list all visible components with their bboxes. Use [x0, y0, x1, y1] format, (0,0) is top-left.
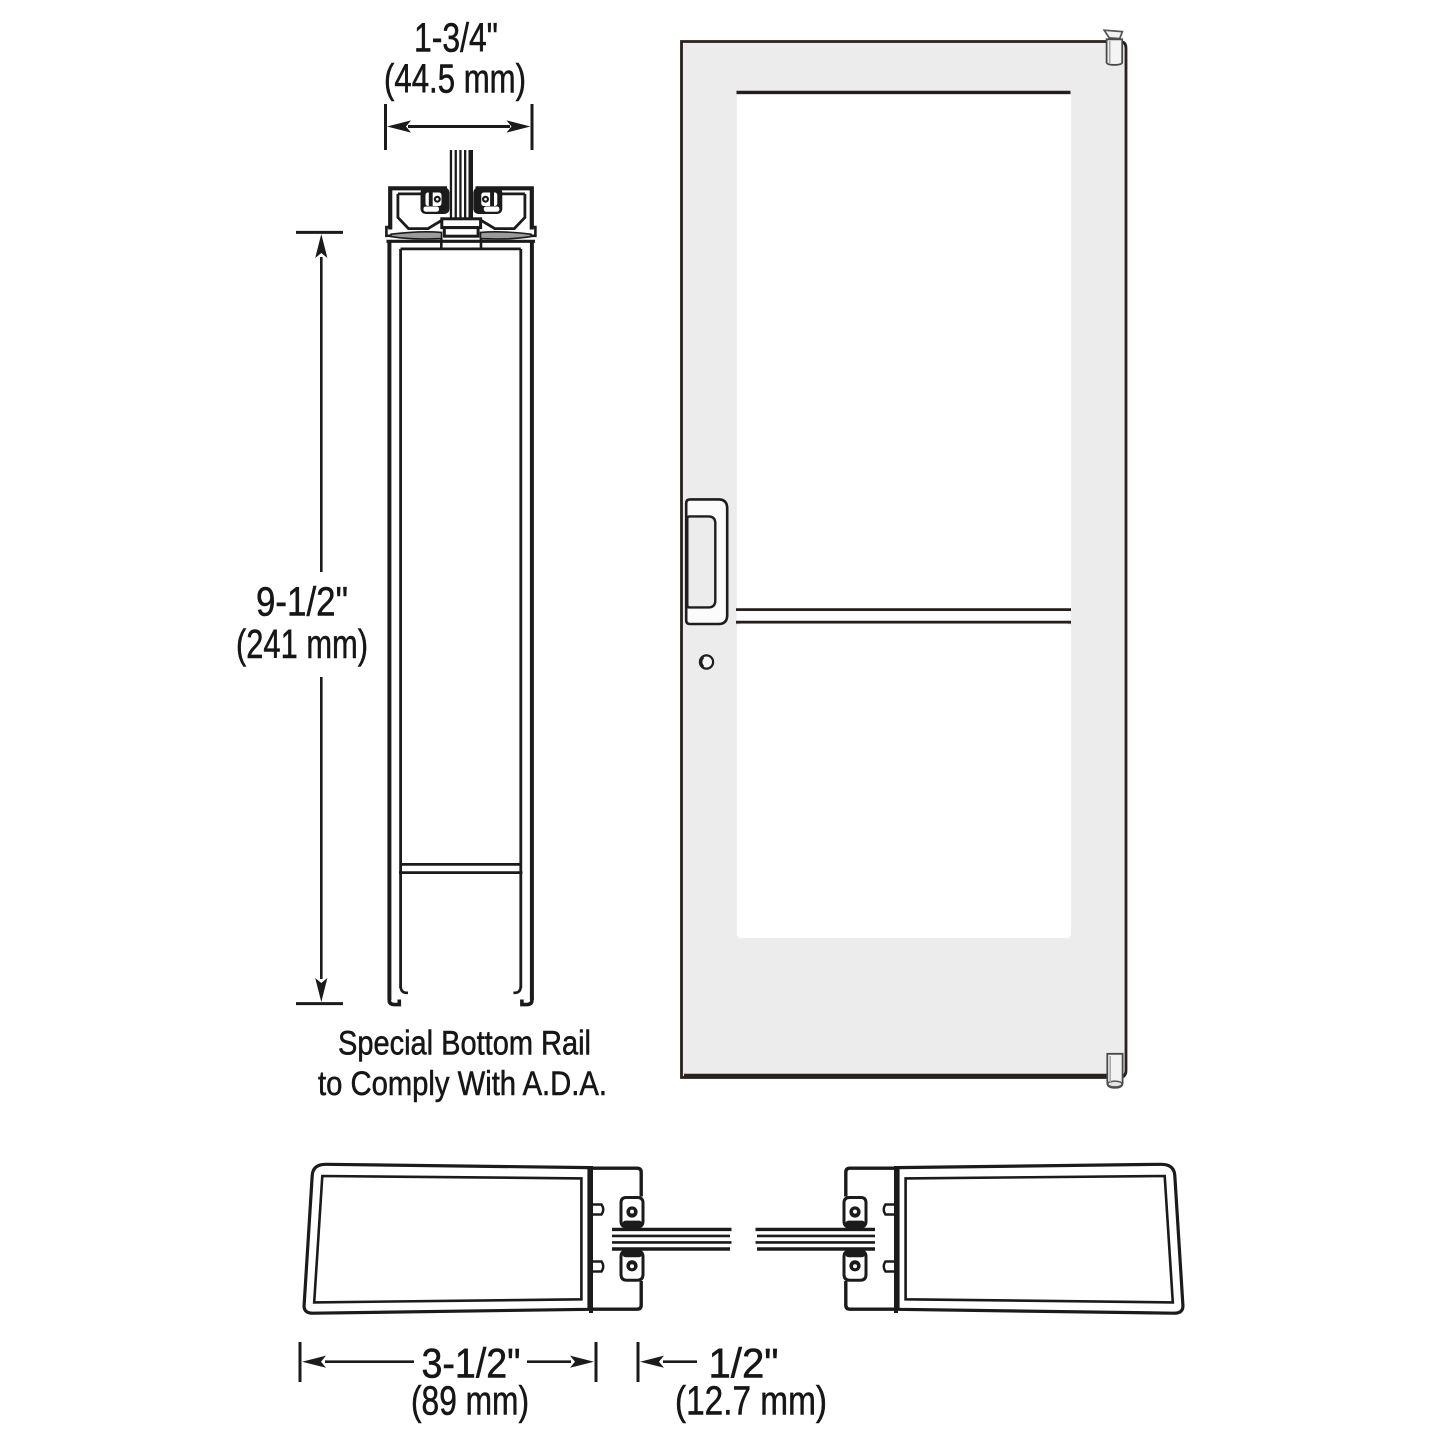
svg-text:Special Bottom Rail: Special Bottom Rail — [338, 1025, 591, 1063]
svg-text:(89 mm): (89 mm) — [411, 1378, 529, 1424]
svg-text:(241 mm): (241 mm) — [236, 621, 368, 667]
svg-text:9-1/2": 9-1/2" — [256, 579, 348, 625]
svg-text:(12.7 mm): (12.7 mm) — [675, 1378, 827, 1424]
svg-text:(44.5 mm): (44.5 mm) — [384, 56, 526, 102]
svg-text:to Comply With A.D.A.: to Comply With A.D.A. — [318, 1065, 607, 1103]
svg-text:1-3/4": 1-3/4" — [414, 15, 498, 61]
